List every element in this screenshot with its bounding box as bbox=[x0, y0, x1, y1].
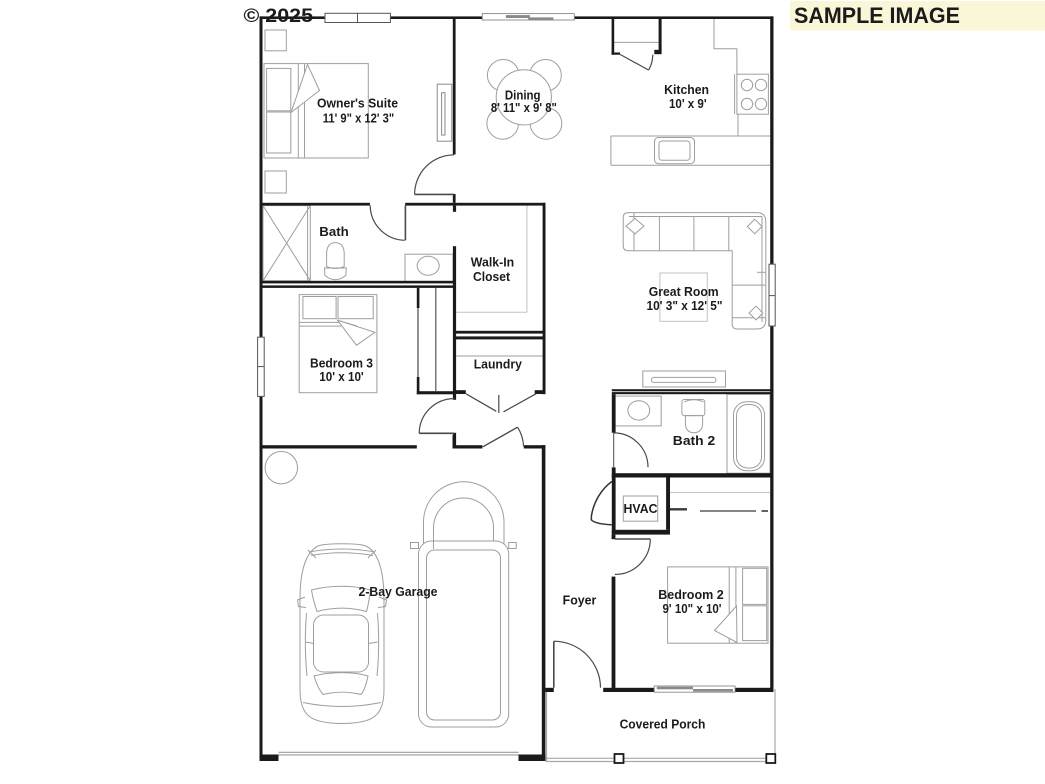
svg-text:9' 10" x 10': 9' 10" x 10' bbox=[663, 601, 722, 616]
svg-text:Bedroom 2: Bedroom 2 bbox=[658, 587, 724, 602]
svg-text:10' x 10': 10' x 10' bbox=[319, 369, 363, 384]
svg-text:Walk-In: Walk-In bbox=[471, 255, 514, 270]
svg-text:HVAC: HVAC bbox=[624, 502, 658, 516]
svg-text:Laundry: Laundry bbox=[474, 357, 523, 372]
svg-text:Kitchen: Kitchen bbox=[664, 82, 709, 97]
svg-text:SAMPLE IMAGE: SAMPLE IMAGE bbox=[794, 3, 960, 28]
svg-text:Closet: Closet bbox=[473, 269, 511, 284]
svg-text:Covered Porch: Covered Porch bbox=[620, 716, 706, 731]
svg-text:2-Bay Garage: 2-Bay Garage bbox=[359, 584, 438, 599]
svg-text:10' x 9': 10' x 9' bbox=[669, 96, 707, 111]
svg-text:11' 9" x 12' 3": 11' 9" x 12' 3" bbox=[323, 110, 394, 125]
svg-text:Bath: Bath bbox=[319, 224, 349, 239]
svg-text:Bath 2: Bath 2 bbox=[673, 433, 715, 448]
svg-text:10' 3" x 12' 5": 10' 3" x 12' 5" bbox=[647, 298, 723, 313]
svg-text:8' 11" x 9' 8": 8' 11" x 9' 8" bbox=[491, 100, 557, 115]
svg-text:Owner's Suite: Owner's Suite bbox=[317, 96, 398, 111]
svg-text:Foyer: Foyer bbox=[563, 593, 597, 608]
svg-text:Great Room: Great Room bbox=[649, 284, 719, 299]
